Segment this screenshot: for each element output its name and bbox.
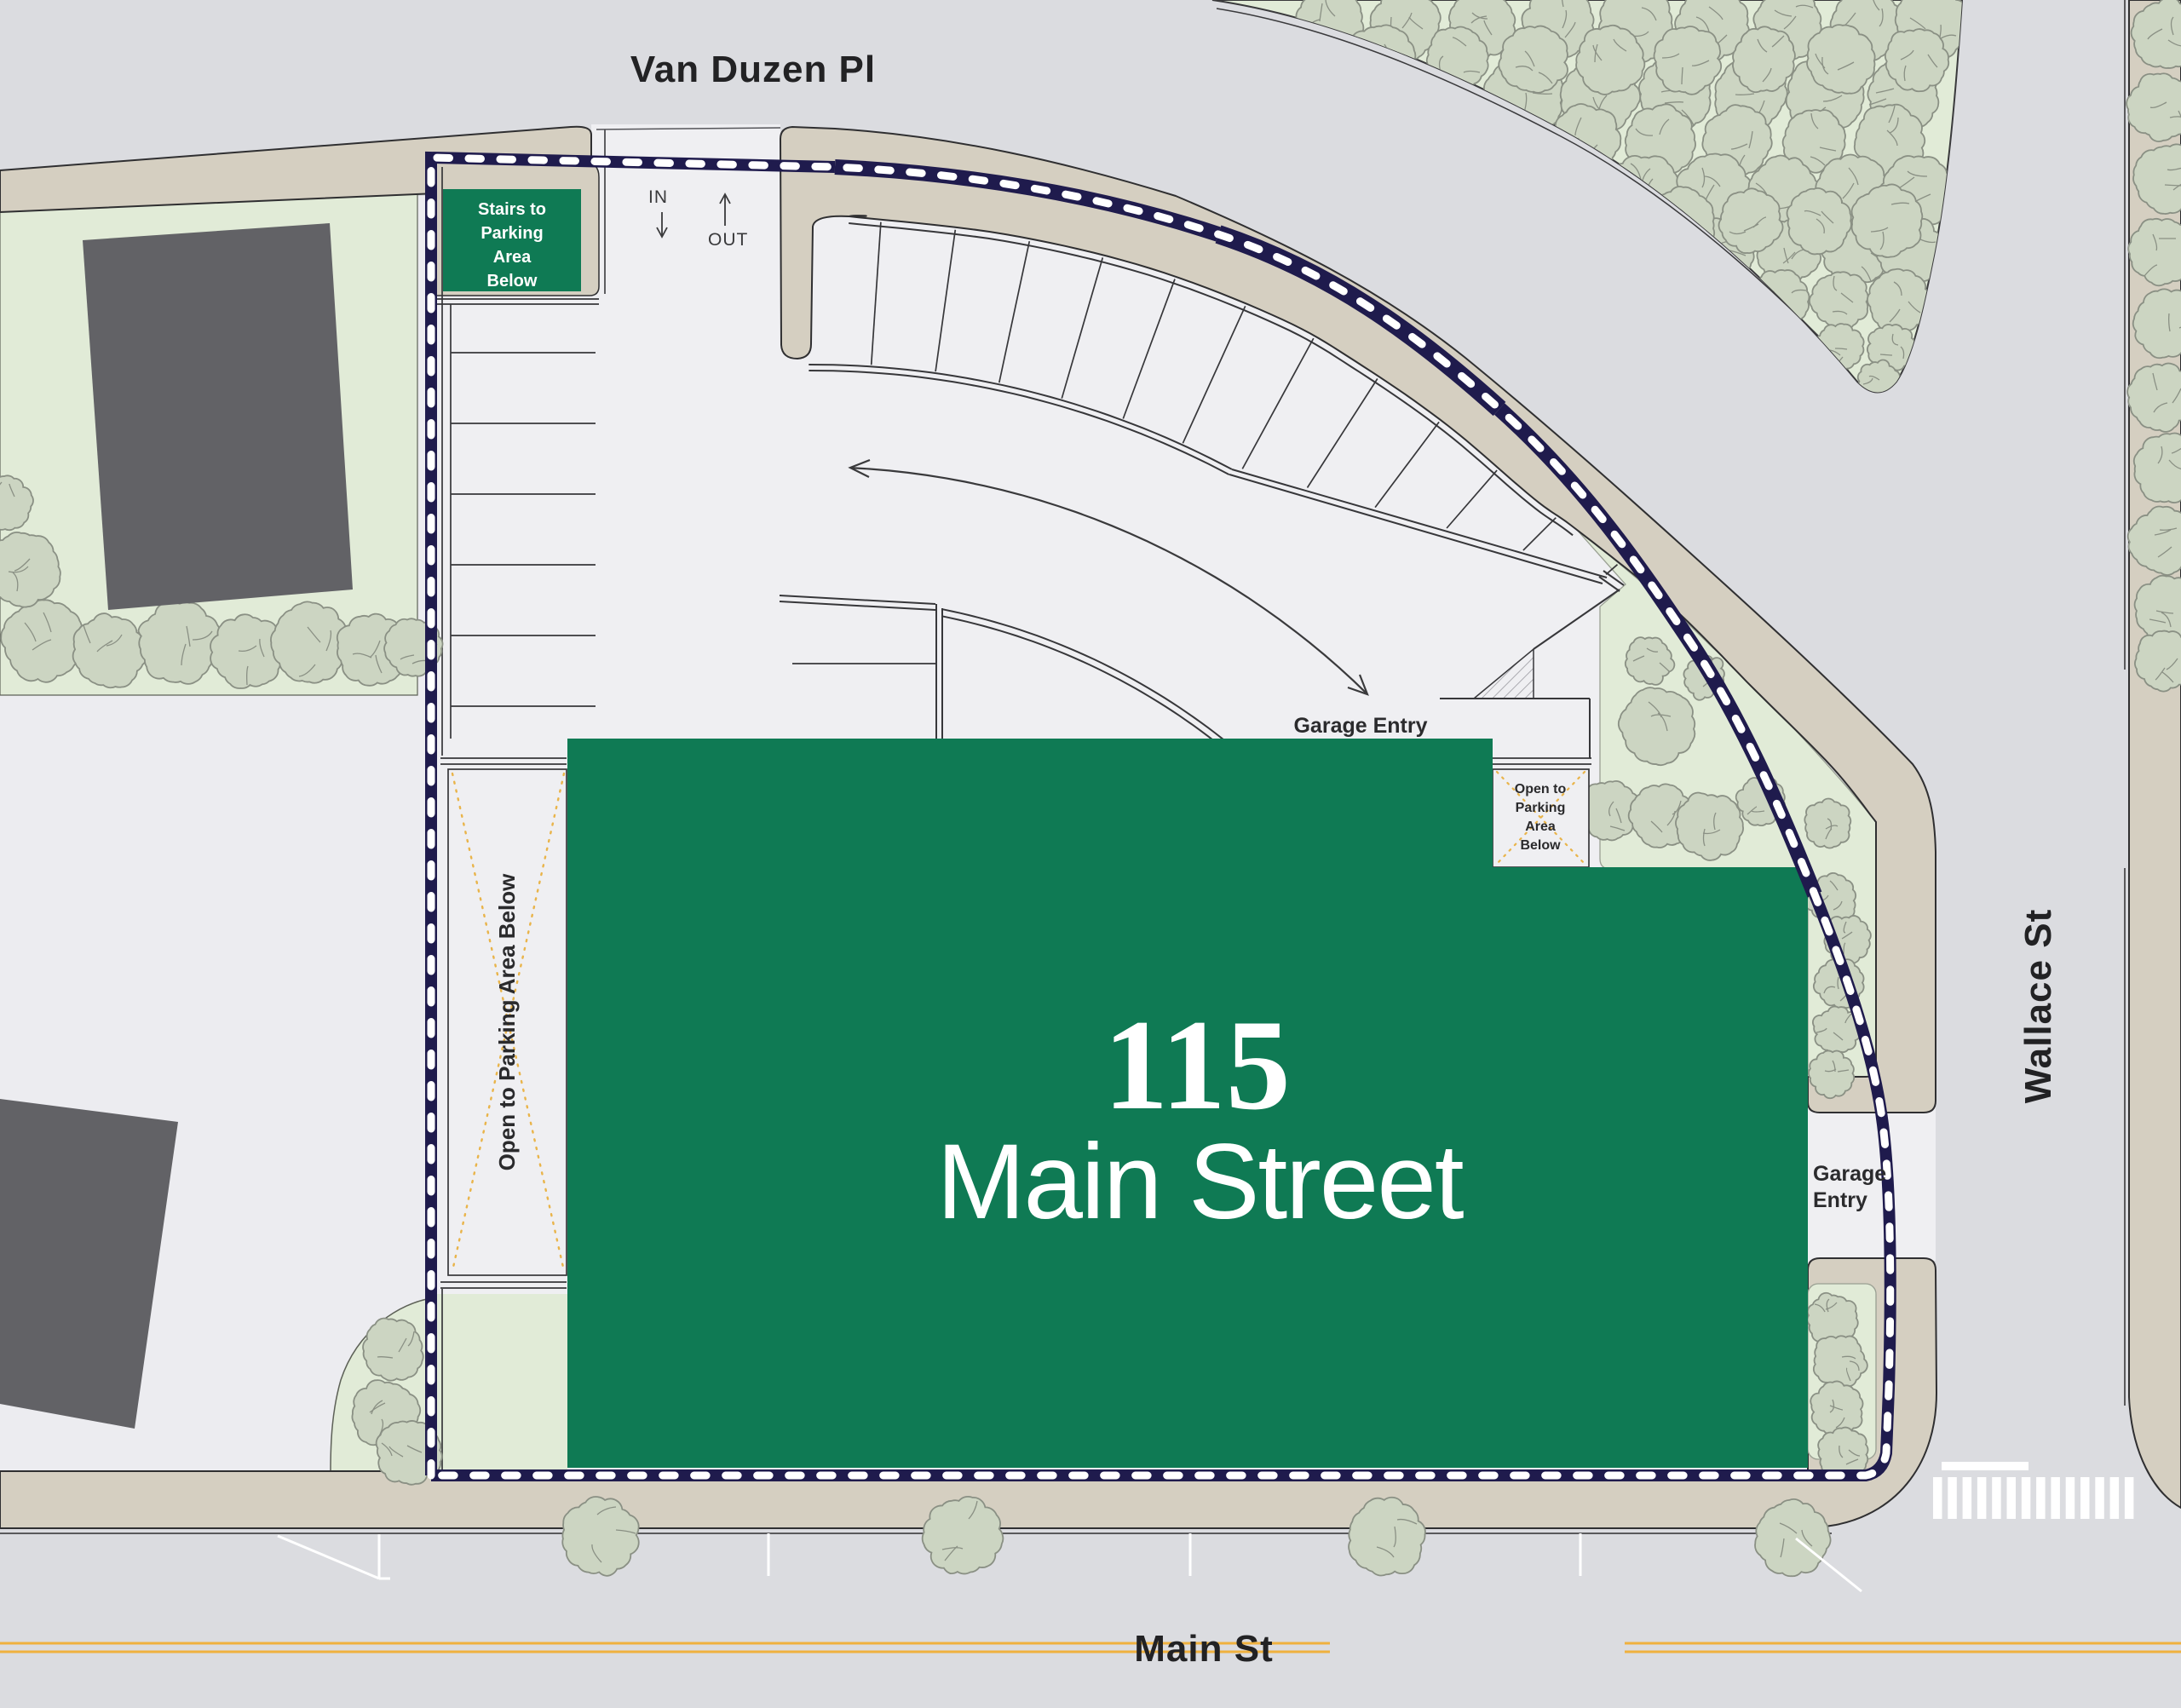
svg-text:Area: Area	[1525, 819, 1556, 834]
svg-text:Parking: Parking	[481, 224, 543, 243]
svg-text:Below: Below	[487, 272, 538, 290]
svg-text:Garage Entry: Garage Entry	[1293, 714, 1427, 738]
svg-text:Main St: Main St	[1134, 1628, 1273, 1670]
svg-text:Stairs to: Stairs to	[478, 200, 546, 219]
svg-text:IN: IN	[648, 187, 668, 207]
svg-text:115: 115	[1103, 993, 1291, 1136]
svg-text:Parking: Parking	[1516, 801, 1566, 815]
svg-text:Entry: Entry	[1813, 1188, 1867, 1212]
svg-text:OUT: OUT	[708, 230, 748, 250]
svg-text:Open to: Open to	[1515, 782, 1567, 796]
svg-text:Van Duzen Pl: Van Duzen Pl	[630, 49, 876, 90]
svg-text:Area: Area	[493, 248, 532, 267]
svg-text:Wallace St: Wallace St	[2017, 909, 2059, 1103]
svg-text:Garage: Garage	[1813, 1162, 1886, 1186]
svg-text:Open to Parking Area Below: Open to Parking Area Below	[494, 873, 520, 1170]
svg-text:Below: Below	[1520, 838, 1561, 853]
svg-text:Main Street: Main Street	[936, 1123, 1463, 1241]
